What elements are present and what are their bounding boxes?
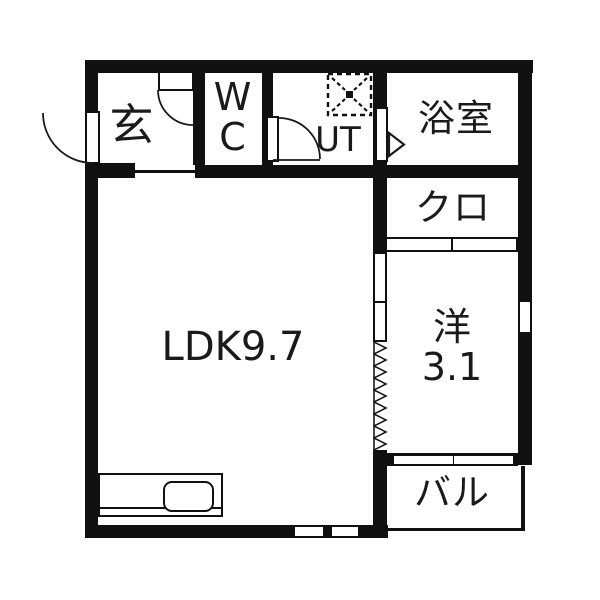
entrance-door-leaf (85, 111, 100, 164)
room-label-bathroom: 浴室 (415, 98, 497, 140)
washing-machine-pan-icon (328, 74, 371, 115)
wall-right-lower (518, 333, 532, 465)
wc-door-swing-arc (158, 90, 193, 125)
bathroom-door-leaf (375, 107, 388, 162)
wall-left-upper (85, 60, 98, 112)
closet-sliding-door-panel-2 (451, 237, 518, 252)
room-label-wc: WC (211, 74, 255, 162)
bathroom-folding-door-icon (389, 133, 404, 156)
ut-door-leaf (266, 116, 279, 162)
wall-top (85, 60, 533, 73)
kitchen-sink-icon (163, 481, 214, 512)
room-label-western: 洋3.1 (404, 326, 500, 370)
wall-left-lower (85, 163, 98, 538)
balcony-border-right (521, 466, 525, 531)
floorplan: 玄 WC UT 浴室 クロ LDK9.7 洋3.1 バル (0, 0, 600, 600)
genkan-step-line (135, 170, 195, 173)
room-label-genkan: 玄 (107, 98, 157, 154)
western-room-window (518, 300, 532, 334)
room-label-ldk: LDK9.7 (158, 324, 308, 370)
balcony-window-panel-1 (393, 455, 455, 465)
closet-sliding-door-panel-1 (385, 237, 453, 252)
wc-door-leaf (158, 71, 194, 91)
bottom-wall-vent-left (295, 527, 323, 536)
wall-right-upper (518, 60, 532, 301)
room-label-closet: クロ (413, 187, 493, 229)
bottom-wall-vent-right (332, 527, 358, 536)
accordion-partition-icon (374, 342, 386, 450)
balcony-window-panel-2 (453, 455, 514, 465)
wall-hall-south (195, 165, 532, 178)
wall-genkan-wc (193, 60, 205, 165)
balcony-border-bottom (388, 528, 525, 531)
wall-genkan-south (85, 163, 135, 178)
room-label-ut: UT (312, 120, 364, 162)
partition-panel-2 (373, 301, 387, 342)
room-label-balcony: バル (412, 472, 492, 514)
partition-panel-1 (373, 252, 387, 303)
wall-ldk-balcony (373, 450, 387, 538)
